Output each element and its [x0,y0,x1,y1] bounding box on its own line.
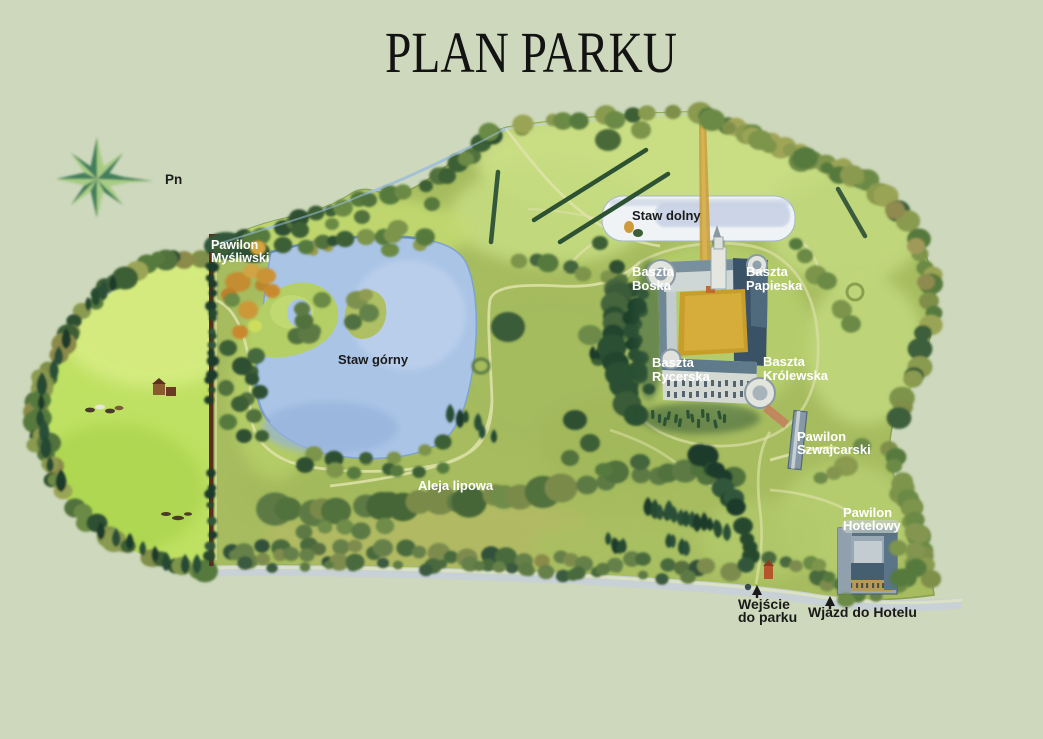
svg-text:Baszta: Baszta [652,355,695,370]
svg-text:Hotelowy: Hotelowy [843,518,902,533]
svg-text:Papieska: Papieska [746,278,803,293]
svg-text:Staw dolny: Staw dolny [632,208,701,223]
svg-text:Staw górny: Staw górny [338,352,409,367]
svg-text:Pn: Pn [165,172,182,187]
svg-text:Wjazd do Hotelu: Wjazd do Hotelu [808,604,917,620]
svg-text:Baszta: Baszta [632,264,675,279]
svg-text:Pawilon: Pawilon [211,238,258,252]
svg-text:Rycerska: Rycerska [652,369,711,384]
svg-text:Boska: Boska [632,278,672,293]
svg-text:Królewska: Królewska [763,368,829,383]
svg-text:PLAN PARKU: PLAN PARKU [385,20,677,85]
svg-text:Aleja lipowa: Aleja lipowa [418,478,494,493]
svg-text:Myśliwski: Myśliwski [211,251,269,265]
svg-text:Szwajcarski: Szwajcarski [797,442,871,457]
svg-text:Baszta: Baszta [746,264,789,279]
svg-text:Baszta: Baszta [763,354,806,369]
svg-text:do parku: do parku [738,609,797,625]
